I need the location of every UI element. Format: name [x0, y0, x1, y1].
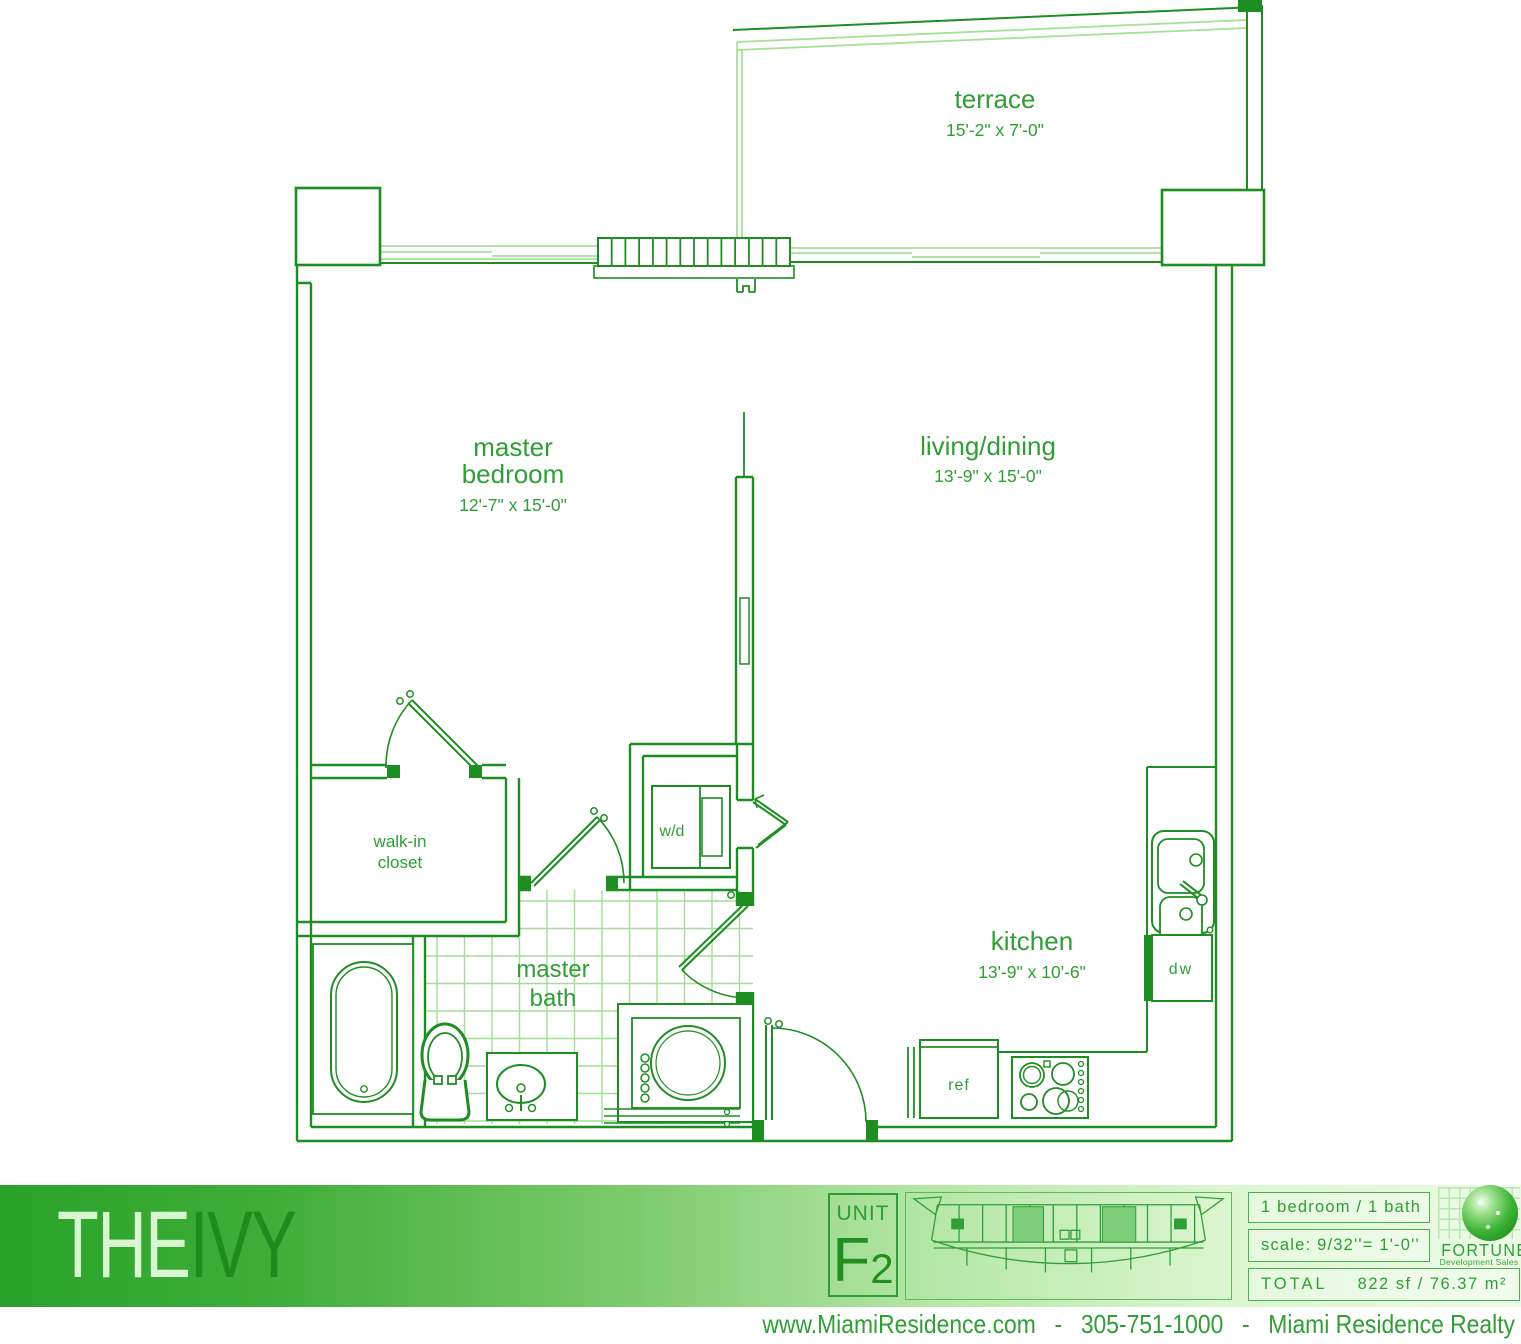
globe-dot-icon: [1478, 1201, 1482, 1205]
kitchen-sink: [1152, 831, 1214, 943]
unit-number: 2: [870, 1246, 893, 1292]
company-text: Miami Residence Realty: [1268, 1309, 1515, 1339]
walk-in-closet-label-2: closet: [378, 853, 423, 872]
brand-ivy: IVY: [189, 1192, 295, 1298]
terrace-label: terrace: [955, 84, 1036, 114]
phone-text: 305-751-1000: [1081, 1309, 1223, 1339]
separator: -: [1054, 1309, 1062, 1339]
refrigerator-label: ref: [948, 1077, 970, 1094]
bath-living-door: [679, 892, 748, 998]
washer-dryer-door: [753, 795, 788, 848]
contact-line: www.MiamiResidence.com - 305-751-1000 - …: [182, 1309, 1515, 1343]
master-bath-label-2: bath: [530, 985, 577, 1012]
separator: -: [1242, 1309, 1250, 1339]
shower: [604, 1004, 753, 1127]
fortune-tagline: Development Sales: [1438, 1257, 1520, 1267]
kitchen-dims: 13'-9" x 10'-6": [978, 962, 1086, 982]
column-top-left: [296, 188, 380, 265]
cooktop: [1012, 1057, 1088, 1118]
total-label: TOTAL: [1261, 1275, 1328, 1294]
keyplan-highlight-unit-2: [1102, 1207, 1135, 1242]
floor-plan: terrace 15'-2" x 7'-0" master bedroom 12…: [0, 0, 1521, 1185]
master-bath-label-1: master: [516, 956, 589, 983]
fortune-logo: FORTUNE Development Sales: [1438, 1187, 1520, 1267]
closet-door: [386, 691, 478, 769]
washer-dryer-label: w/d: [659, 823, 685, 840]
living-dining-dims: 13'-9" x 15'-0": [934, 466, 1042, 486]
kitchen-label: kitchen: [991, 926, 1073, 956]
brand-logo: THEIVY: [57, 1193, 295, 1297]
room-labels: terrace 15'-2" x 7'-0" master bedroom 12…: [373, 84, 1194, 1094]
master-bedroom-label-2: bedroom: [462, 459, 565, 489]
fortune-globe-icon: [1462, 1185, 1518, 1241]
footer-bar: THEIVY UNIT F 2: [0, 1185, 1521, 1307]
vanity-sink: [487, 1053, 577, 1120]
building-keyplan: [905, 1192, 1232, 1300]
pocket-door-panel: [740, 598, 749, 664]
brand-the: THE: [57, 1192, 189, 1298]
entry-door: [765, 1018, 866, 1122]
column-top-right: [1162, 190, 1264, 265]
window-mullion-strip: [594, 238, 794, 278]
globe-dot-icon: [1496, 1211, 1500, 1215]
total-area-info: TOTAL 822 sf / 76.37 m²: [1248, 1268, 1520, 1301]
living-dining-label: living/dining: [920, 431, 1056, 461]
globe-dot-icon: [1486, 1225, 1490, 1229]
unit-code: F 2: [830, 1226, 896, 1292]
unit-label: UNIT: [830, 1202, 896, 1226]
floorplan-page: terrace 15'-2" x 7'-0" master bedroom 12…: [0, 0, 1521, 1344]
toilet: [421, 1024, 469, 1120]
walk-in-closet-label-1: walk-in: [373, 832, 427, 851]
keyplan-highlight-unit-1: [1013, 1207, 1043, 1242]
scale-info: scale: 9/32''= 1'-0'': [1248, 1229, 1430, 1262]
dishwasher-label: dw: [1169, 961, 1193, 978]
windows-and-railings: [380, 20, 1247, 259]
terrace-dims: 15'-2" x 7'-0": [946, 120, 1044, 140]
unit-letter: F: [832, 1230, 870, 1292]
scale-text: scale: 9/32''= 1'-0'': [1261, 1236, 1420, 1255]
total-value: 822 sf / 76.37 m²: [1358, 1275, 1507, 1294]
unit-box: UNIT F 2: [828, 1193, 898, 1297]
bathtub: [313, 944, 413, 1114]
walls: [297, 5, 1262, 1141]
master-bedroom-dims: 12'-7" x 15'-0": [459, 495, 567, 515]
bed-bath-info: 1 bedroom / 1 bath: [1248, 1192, 1430, 1223]
bath-door: [531, 808, 624, 886]
master-bedroom-label-1: master: [473, 432, 553, 462]
website-text: www.MiamiResidence.com: [762, 1309, 1035, 1339]
bed-bath-text: 1 bedroom / 1 bath: [1261, 1198, 1421, 1217]
